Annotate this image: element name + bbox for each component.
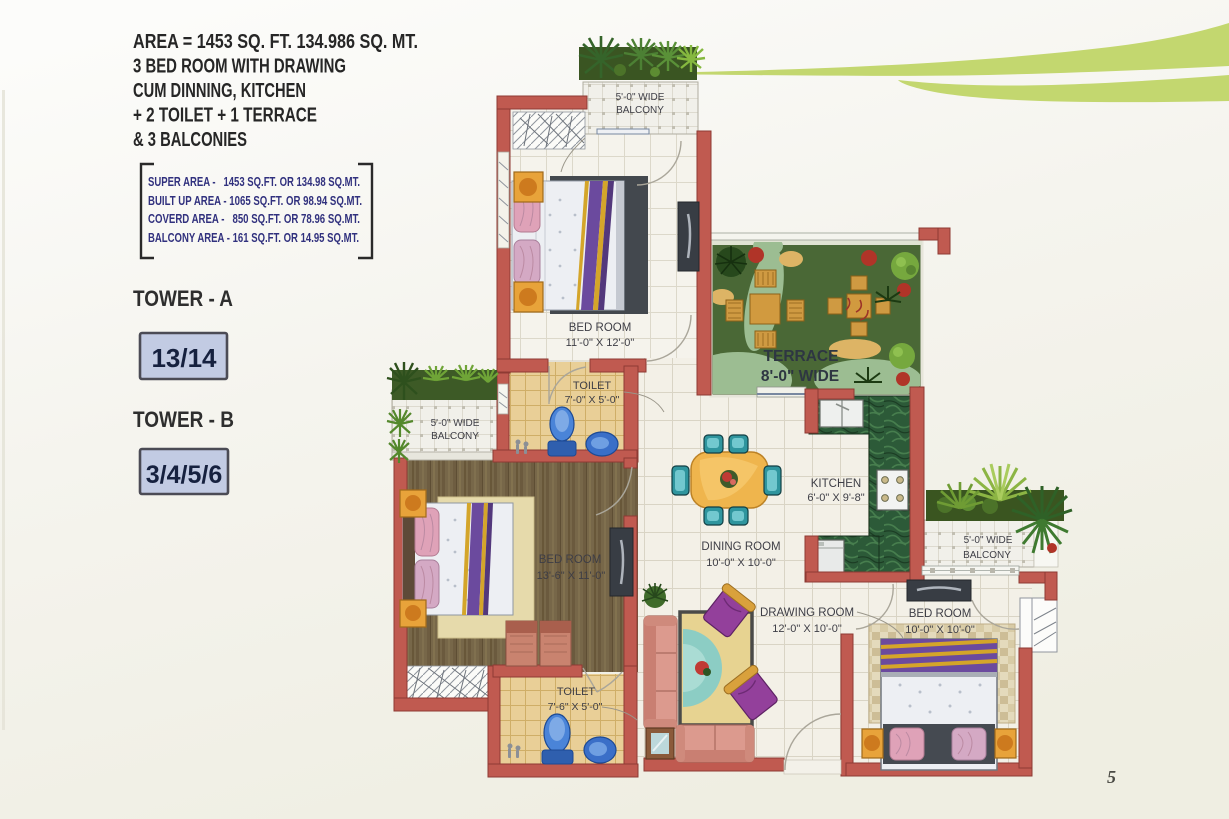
svg-text:TOILET: TOILET bbox=[557, 686, 596, 698]
svg-text:TOILET: TOILET bbox=[573, 380, 612, 392]
svg-text:8'-0" WIDE: 8'-0" WIDE bbox=[761, 368, 839, 385]
svg-text:TOWER - B: TOWER - B bbox=[133, 407, 234, 432]
svg-text:7'-0" X 5'-0": 7'-0" X 5'-0" bbox=[565, 394, 620, 406]
svg-text:5'-0" WIDE: 5'-0" WIDE bbox=[964, 535, 1013, 546]
svg-text:7'-6" X 5'-0": 7'-6" X 5'-0" bbox=[548, 701, 603, 713]
svg-text:SUPER AREA - 1453 SQ.FT. OR: SUPER AREA - 1453 SQ.FT. OR 134.98 SQ.MT… bbox=[148, 174, 360, 189]
svg-text:TERRACE: TERRACE bbox=[764, 348, 839, 365]
svg-text:BALCONY: BALCONY bbox=[431, 431, 479, 442]
svg-text:3 BED ROOM WITH DRAWING: 3 BED ROOM WITH DRAWING bbox=[133, 55, 346, 78]
svg-text:BALCONY: BALCONY bbox=[963, 550, 1011, 561]
svg-text:5'-0" WIDE: 5'-0" WIDE bbox=[431, 418, 480, 429]
svg-text:DINING ROOM: DINING ROOM bbox=[701, 541, 780, 553]
svg-text:BED ROOM: BED ROOM bbox=[539, 554, 602, 566]
svg-text:AREA = 1453 SQ. FT. 134.986 SQ: AREA = 1453 SQ. FT. 134.986 SQ. MT. bbox=[133, 30, 418, 53]
svg-text:& 3 BALCONIES: & 3 BALCONIES bbox=[133, 128, 247, 151]
svg-text:5: 5 bbox=[1107, 767, 1116, 787]
svg-text:BALCONY AREA - 161 SQ.FT. OR 1: BALCONY AREA - 161 SQ.FT. OR 14.95 SQ.MT… bbox=[148, 230, 359, 245]
svg-text:BUILT UP AREA - 1065 SQ.FT. OR: BUILT UP AREA - 1065 SQ.FT. OR 98.94 SQ.… bbox=[148, 193, 362, 208]
svg-text:TOWER - A: TOWER - A bbox=[133, 286, 233, 311]
svg-text:13'-6" X 11'-0": 13'-6" X 11'-0" bbox=[537, 570, 606, 582]
svg-text:13/14: 13/14 bbox=[151, 343, 217, 373]
svg-text:6'-0" X 9'-8": 6'-0" X 9'-8" bbox=[807, 492, 864, 504]
svg-text:10'-0" X 10'-0": 10'-0" X 10'-0" bbox=[905, 624, 975, 636]
svg-text:COVERD AREA - 850 SQ.FT. OR: COVERD AREA - 850 SQ.FT. OR 78.96 SQ.MT. bbox=[148, 211, 360, 226]
svg-text:11'-0" X 12'-0": 11'-0" X 12'-0" bbox=[566, 337, 635, 349]
svg-text:5'-0" WIDE: 5'-0" WIDE bbox=[616, 92, 665, 103]
svg-text:10'-0" X 10'-0": 10'-0" X 10'-0" bbox=[706, 557, 776, 569]
svg-text:12'-0" X 10'-0": 12'-0" X 10'-0" bbox=[772, 623, 842, 635]
svg-text:KITCHEN: KITCHEN bbox=[811, 478, 861, 490]
svg-text:+ 2 TOILET + 1 TERRACE: + 2 TOILET + 1 TERRACE bbox=[133, 104, 317, 127]
svg-text:CUM DINNING, KITCHEN: CUM DINNING, KITCHEN bbox=[133, 79, 306, 102]
svg-text:BED ROOM: BED ROOM bbox=[909, 608, 972, 620]
svg-text:BALCONY: BALCONY bbox=[616, 105, 664, 116]
svg-text:DRAWING ROOM: DRAWING ROOM bbox=[760, 607, 854, 619]
svg-text:3/4/5/6: 3/4/5/6 bbox=[146, 461, 222, 489]
svg-text:BED ROOM: BED ROOM bbox=[569, 322, 632, 334]
